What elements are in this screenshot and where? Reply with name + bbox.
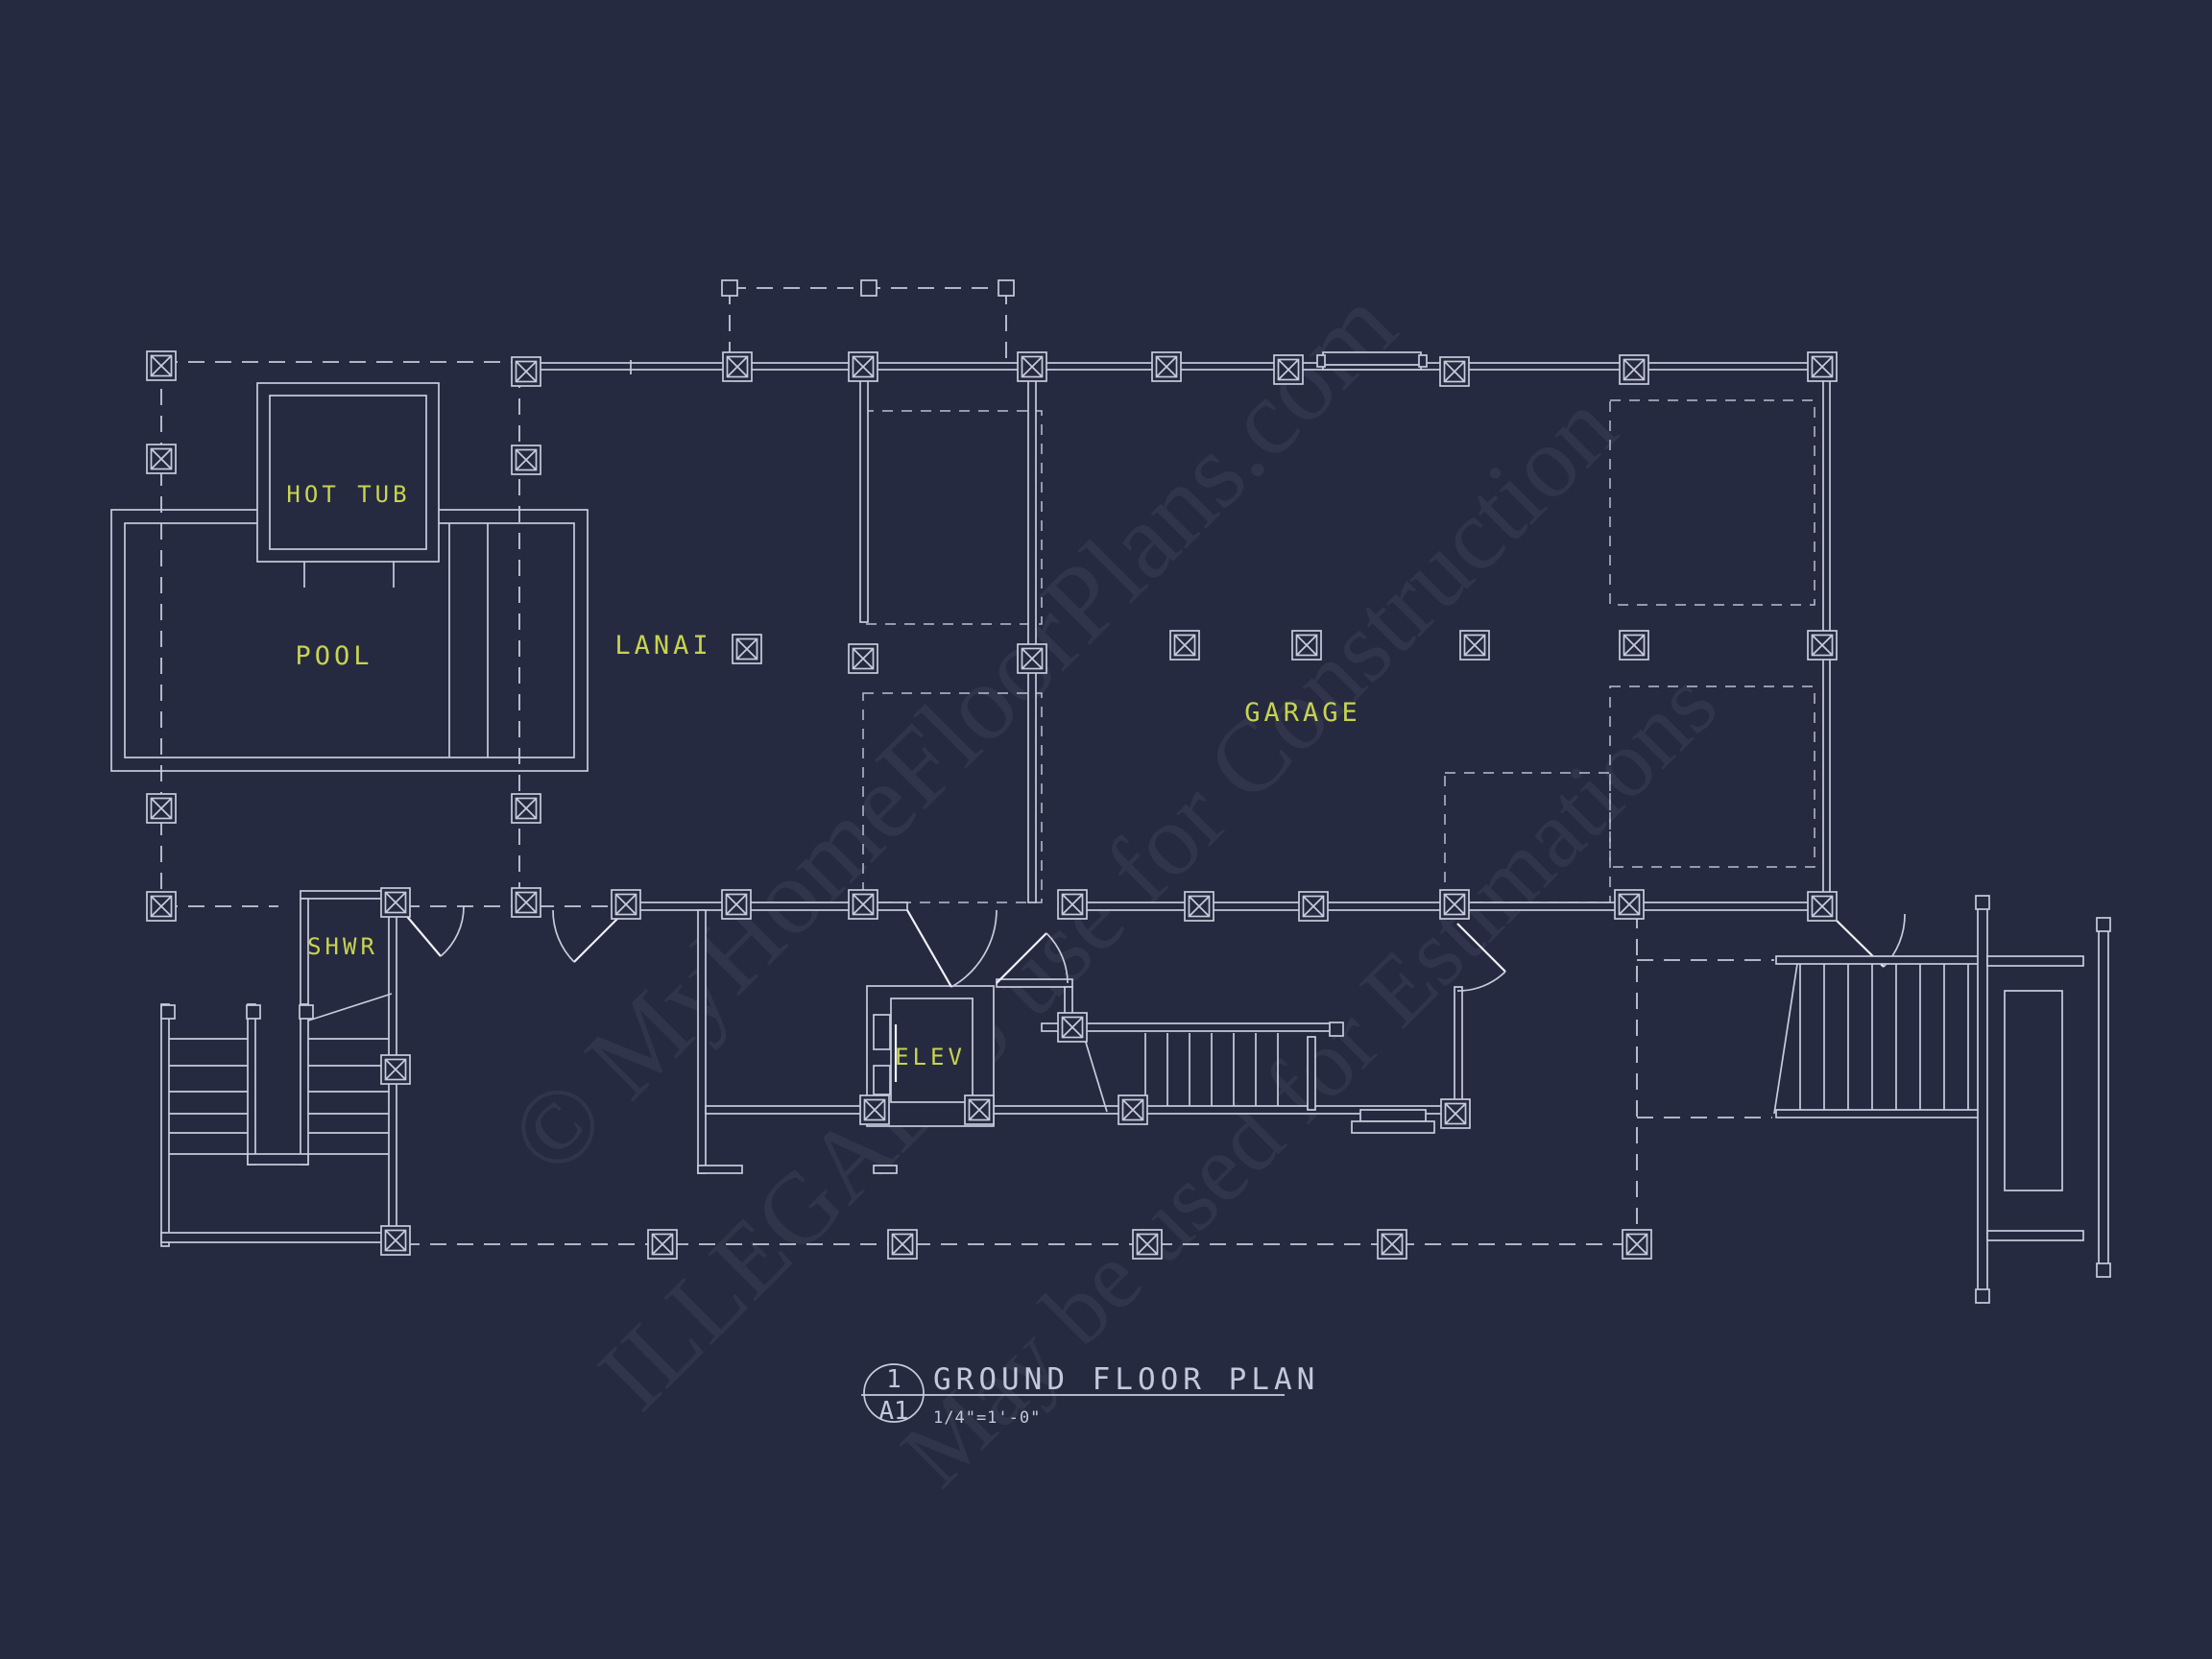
west-stair-stringer-2 <box>301 1004 308 1165</box>
hall-return-wall <box>997 979 1072 987</box>
entry-stair <box>1774 956 1980 1118</box>
elevator-jamb-lower <box>874 1066 890 1094</box>
entry-south-window <box>1360 1110 1426 1121</box>
floor-plan-sheet: © MyHomeFloorPlans.com ILLEGAL to use fo… <box>0 0 2212 1659</box>
landing-inner-edge <box>2005 991 2062 1190</box>
dashed-room-upper-right <box>1610 400 1815 605</box>
elevator-jamb-upper <box>874 1015 890 1049</box>
west-stair <box>161 1004 397 1246</box>
entry-landing <box>1976 896 2110 1303</box>
landing-north-rail <box>1987 956 2083 966</box>
west-stair-stringer-1 <box>248 1004 255 1165</box>
garage-west-wall <box>1028 370 1036 902</box>
west-stair-bottom-rail <box>161 1233 397 1242</box>
plan-title: GROUND FLOOR PLAN <box>933 1362 1319 1397</box>
entry-stair-bottom-rail <box>1776 1110 1980 1118</box>
landing-south-rail <box>1987 1231 2083 1240</box>
detail-number: 1 <box>886 1365 902 1394</box>
elevator-threshold-stub <box>874 1166 897 1173</box>
ground-floor-plan-drawing: © MyHomeFloorPlans.com ILLEGAL to use fo… <box>0 0 2212 1659</box>
entry-stair-treads <box>1800 964 1968 1110</box>
entry-stair-top-rail <box>1776 956 1980 964</box>
sheet-number: A1 <box>878 1397 908 1426</box>
interior-stair-break-line <box>1083 1033 1107 1112</box>
entry-west-wall <box>698 910 706 1173</box>
entry-east-wall <box>1455 987 1462 1112</box>
room-label-hot-tub: HOT TUB <box>286 481 410 508</box>
pool-steps <box>449 523 488 757</box>
landing-west-rail <box>1978 907 1987 1291</box>
entry-south-wall <box>706 1106 1462 1114</box>
entry-stair-break-line <box>1774 964 1797 1114</box>
room-label-lanai: LANAI <box>614 631 711 661</box>
room-label-shwr: SHWR <box>307 933 378 960</box>
west-stair-treads-left-flight <box>169 1039 248 1154</box>
entry-west-wall-return <box>698 1166 742 1173</box>
room-label-garage: GARAGE <box>1244 698 1361 728</box>
garage-north-window <box>1323 352 1421 370</box>
interior-stair-end-stringer <box>1308 1037 1315 1110</box>
shwr-angled-wall <box>302 994 392 1022</box>
landing-east-rail <box>2099 929 2108 1265</box>
west-stair-treads-right-flight <box>308 1039 389 1154</box>
lanai-east-wall <box>860 370 868 622</box>
room-label-elev: ELEV <box>895 1044 966 1070</box>
hot-tub-outer-edge <box>257 383 439 562</box>
west-stair-outer-rail <box>161 1004 169 1246</box>
hot-tub-steps <box>304 562 394 588</box>
room-label-pool: POOL <box>295 641 373 671</box>
plan-scale: 1/4"=1'-0" <box>933 1408 1041 1428</box>
watermark: © MyHomeFloorPlans.com ILLEGAL to use fo… <box>487 266 1737 1506</box>
west-stair-turn-rail <box>248 1154 308 1165</box>
